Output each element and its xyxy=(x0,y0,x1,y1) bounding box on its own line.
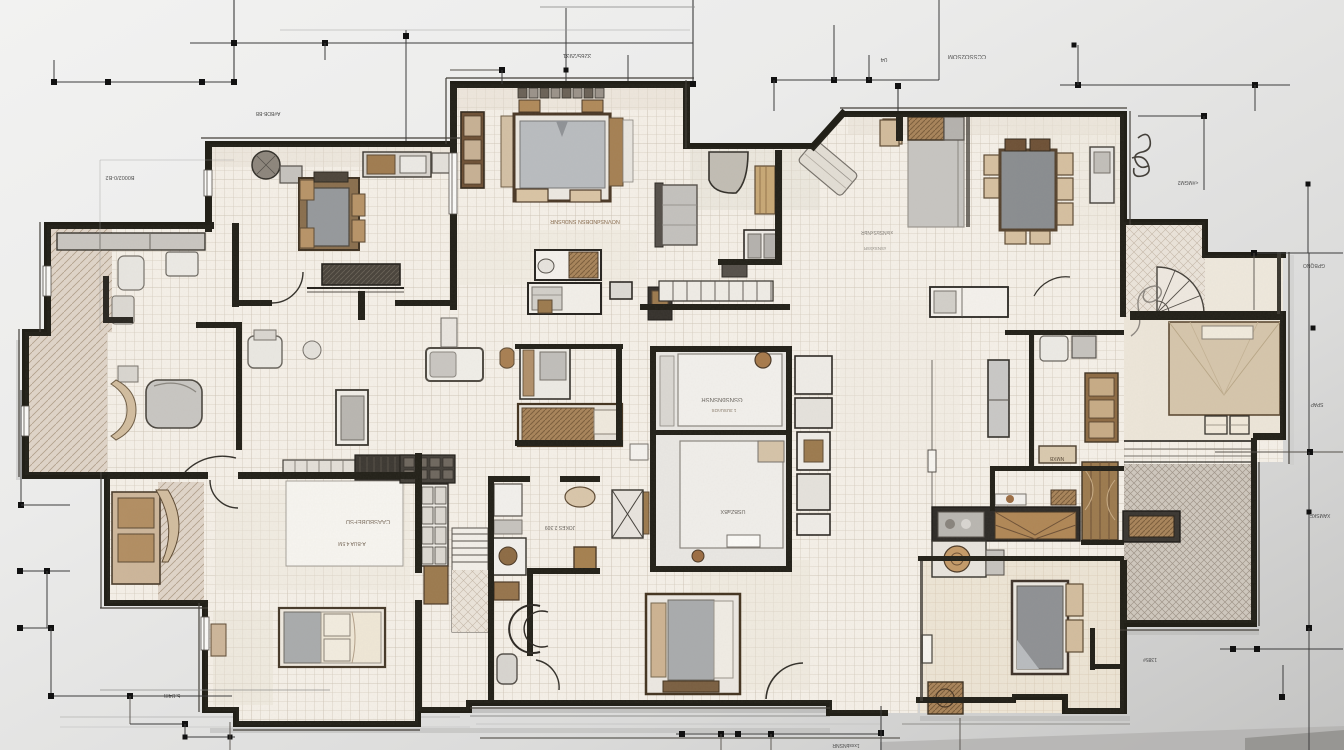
svg-text:1385#: 1385# xyxy=(1143,656,1157,662)
svg-text:CCSSO2SOM: CCSSO2SOM xyxy=(948,53,986,59)
svg-text:A#BDB-BB: A#BDB-BB xyxy=(255,110,280,116)
svg-text:SPAP: SPAP xyxy=(1310,401,1324,407)
svg-text:<#MGM2: <#MGM2 xyxy=(1177,179,1198,185)
svg-text:GPBQNO: GPBQNO xyxy=(1303,262,1325,268)
svg-text:04: 04 xyxy=(880,56,887,62)
svg-text:B0002/0-B2: B0002/0-B2 xyxy=(105,174,134,180)
svg-text:XAMSKE: XAMSKE xyxy=(1309,512,1331,518)
svg-text:3265/2931: 3265/2931 xyxy=(562,52,591,58)
svg-text:5.84m: 5.84m xyxy=(164,692,181,698)
svg-text:1xxsbNSNR: 1xxsbNSNR xyxy=(832,742,860,748)
